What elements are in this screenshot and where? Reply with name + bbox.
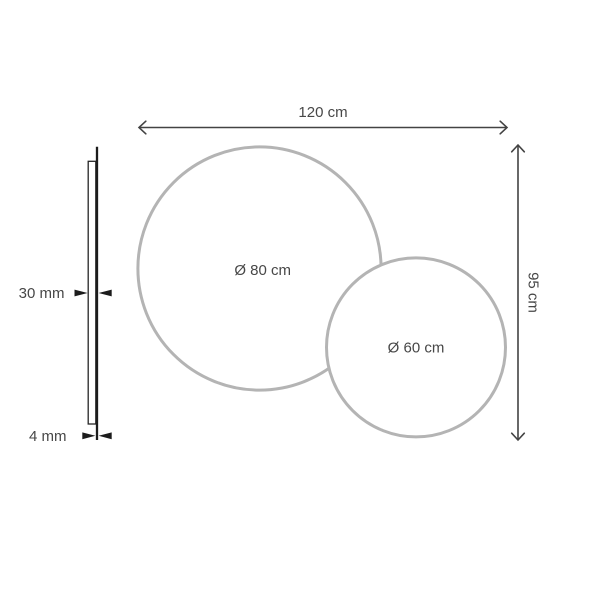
svg-text:95 cm: 95 cm (524, 272, 541, 313)
svg-text:30 mm: 30 mm (19, 285, 65, 302)
svg-text:120 cm: 120 cm (298, 104, 347, 121)
svg-text:Ø 80 cm: Ø 80 cm (234, 262, 291, 279)
svg-text:Ø 60 cm: Ø 60 cm (388, 340, 445, 357)
svg-text:4 mm: 4 mm (29, 428, 67, 445)
